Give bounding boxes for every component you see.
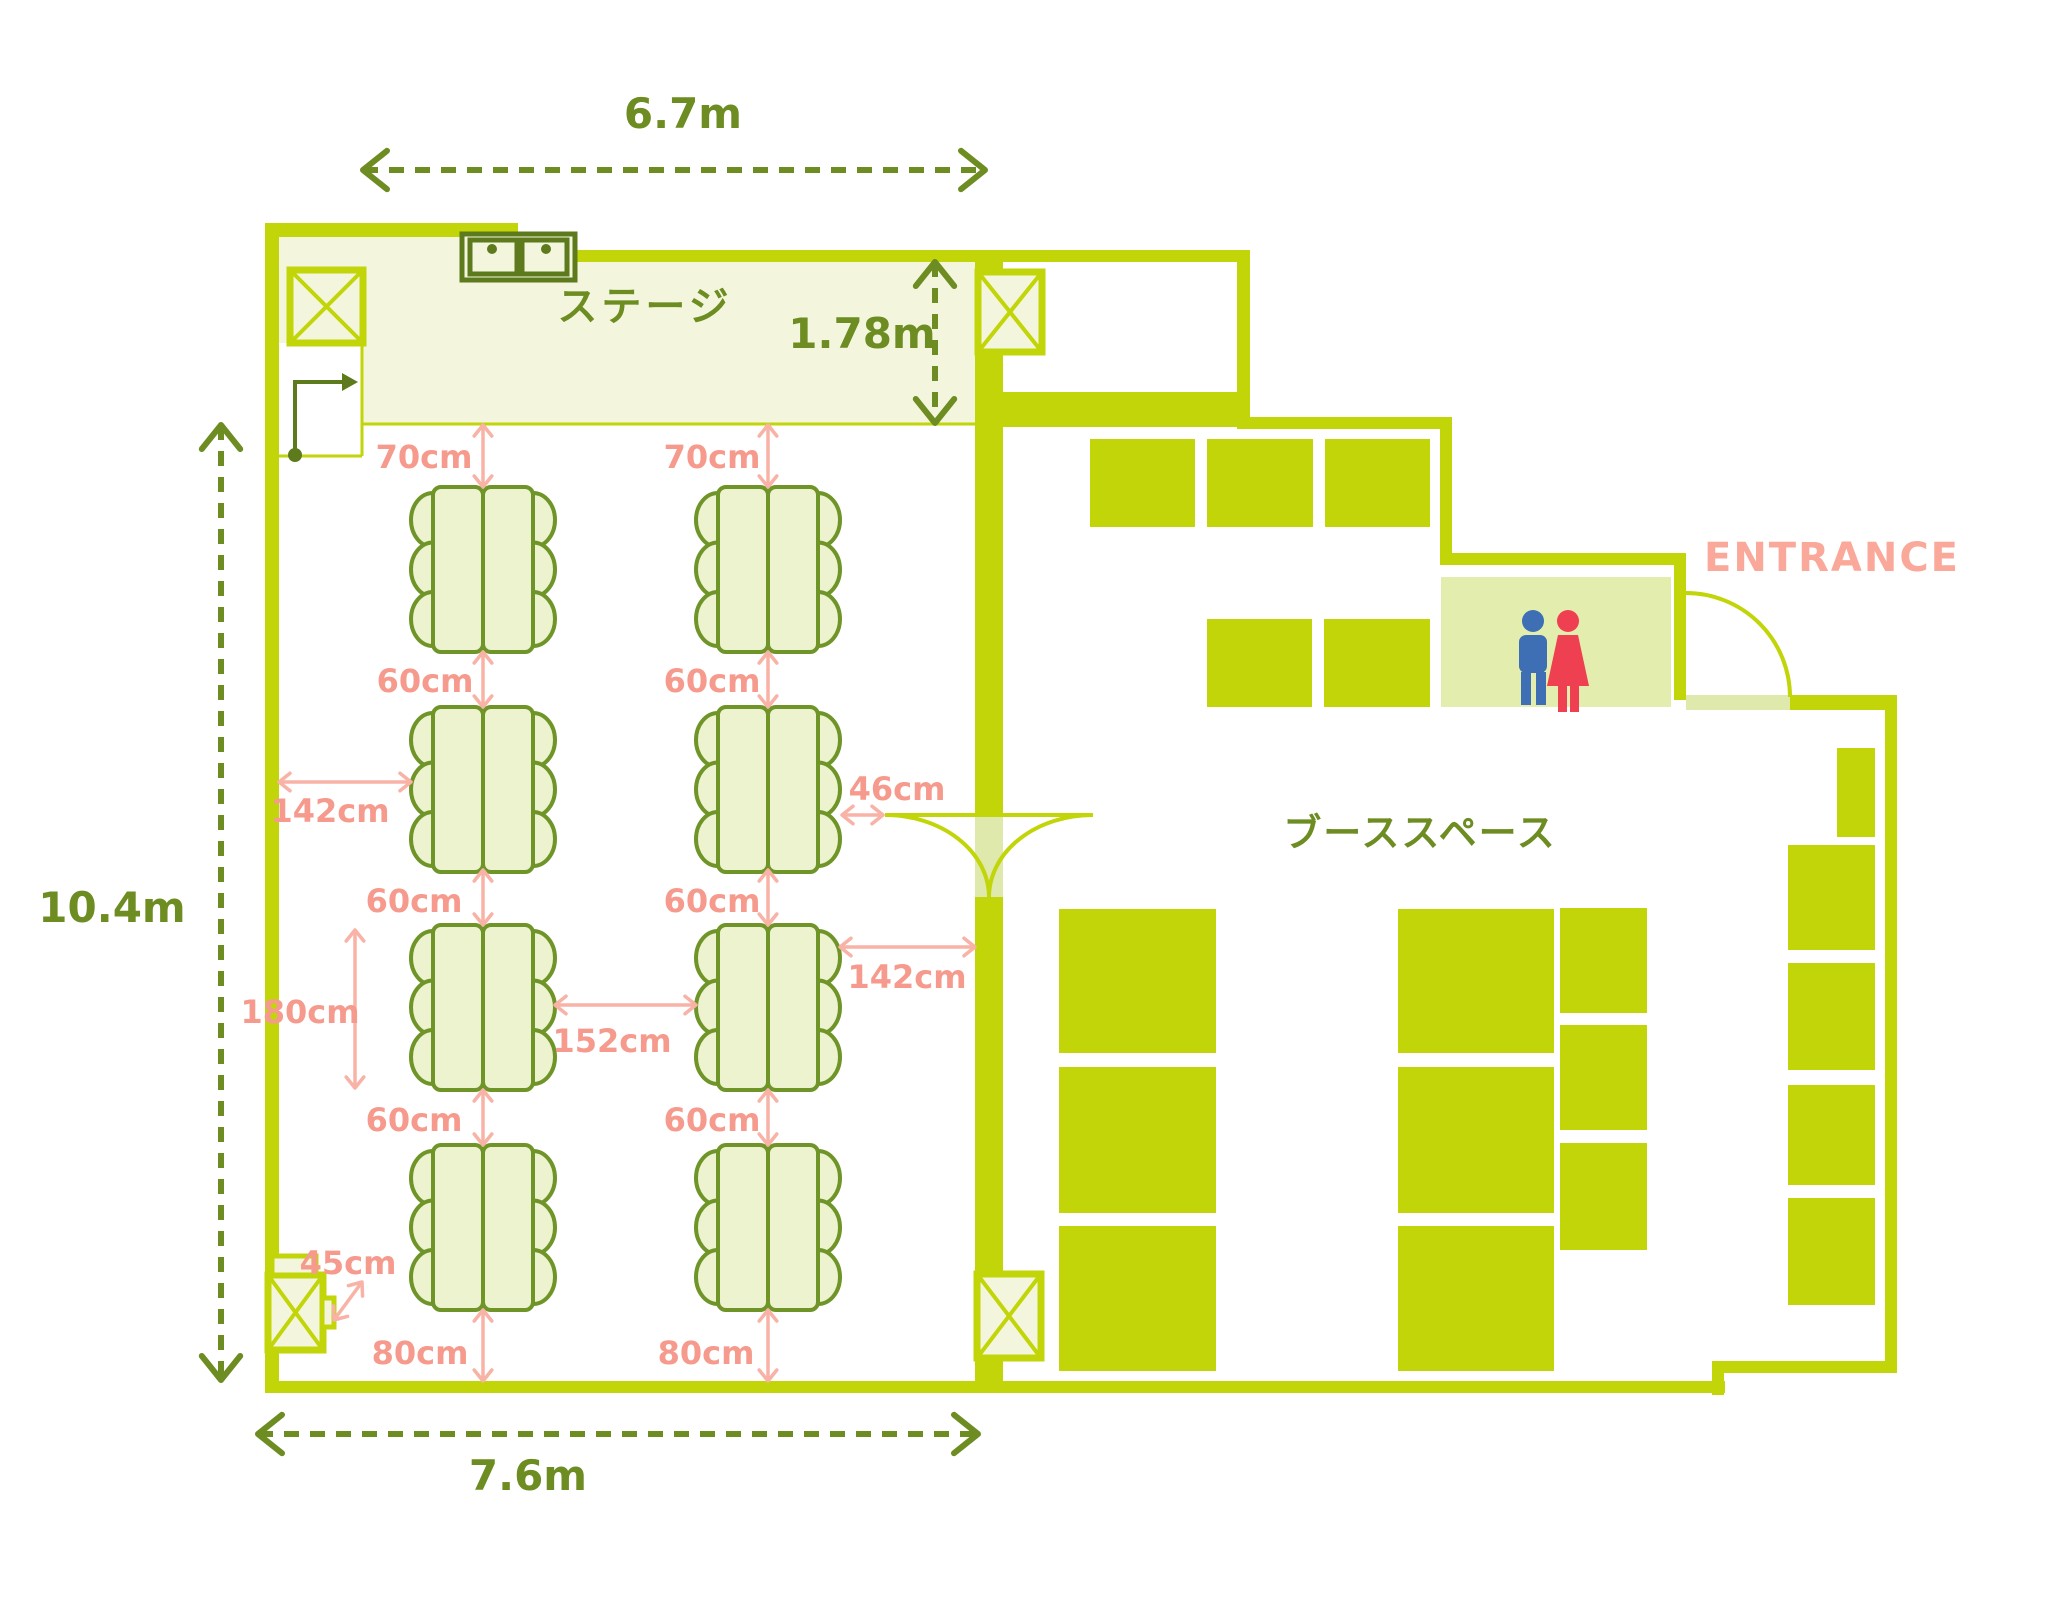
- dimension: 70cm: [664, 425, 777, 487]
- wall-segment: [1237, 417, 1452, 429]
- booth-table: [1788, 1085, 1875, 1185]
- dimension-label: 142cm: [847, 958, 966, 996]
- booth-table: [1788, 1198, 1875, 1305]
- dimension: 142cm: [270, 773, 411, 830]
- dimension-label: 70cm: [376, 438, 473, 476]
- chair: [818, 763, 840, 817]
- chair: [696, 812, 718, 866]
- dimension: 60cm: [664, 870, 777, 925]
- dimension: 10.4m: [38, 425, 240, 1380]
- chair: [818, 592, 840, 646]
- chair: [533, 812, 555, 866]
- table: [483, 925, 533, 1090]
- chair: [818, 543, 840, 597]
- wall-segment: [1440, 417, 1452, 565]
- dimension-label: 80cm: [372, 1334, 469, 1372]
- chair: [818, 1250, 840, 1304]
- table: [718, 707, 768, 872]
- faucet-dot-icon: [487, 244, 497, 254]
- chair: [411, 763, 433, 817]
- booth-table: [1837, 748, 1875, 837]
- wall-segment: [1440, 553, 1686, 565]
- chair: [533, 592, 555, 646]
- booth-table: [1207, 439, 1313, 527]
- dimension: 80cm: [658, 1310, 777, 1381]
- chair: [533, 763, 555, 817]
- chair: [533, 543, 555, 597]
- dimension-label: 1.78m: [788, 309, 935, 358]
- booth-table: [1059, 1226, 1216, 1371]
- table-group: [696, 707, 840, 872]
- chair: [533, 493, 555, 547]
- chair: [696, 1151, 718, 1205]
- table: [718, 925, 768, 1090]
- table: [433, 707, 483, 872]
- dimension: 60cm: [664, 1090, 777, 1145]
- dimension-label: 142cm: [270, 792, 389, 830]
- chair: [411, 931, 433, 985]
- dimension-label: 60cm: [664, 1101, 761, 1139]
- wall-segment: [975, 392, 1245, 427]
- dimension: 152cm: [552, 996, 696, 1060]
- table: [433, 1145, 483, 1310]
- wall-segment: [265, 1381, 1725, 1393]
- wall-segment: [1722, 1361, 1897, 1373]
- chair: [411, 1201, 433, 1255]
- booth-table: [1560, 1143, 1647, 1250]
- entrance-label: ENTRANCE: [1704, 535, 1960, 581]
- chair: [411, 812, 433, 866]
- dimension-label: 60cm: [377, 662, 474, 700]
- booth-table: [1788, 963, 1875, 1070]
- chair: [533, 1201, 555, 1255]
- table: [768, 925, 818, 1090]
- chair: [818, 1151, 840, 1205]
- dimension: 80cm: [372, 1310, 492, 1381]
- chair: [411, 1250, 433, 1304]
- dimension-label: 80cm: [658, 1334, 755, 1372]
- booth-table: [1560, 908, 1647, 1013]
- chair: [696, 1250, 718, 1304]
- dimension: 7.6m: [258, 1415, 978, 1500]
- dimension-label: 45cm: [300, 1244, 397, 1282]
- table-group: [411, 1145, 555, 1310]
- dimension-label: 7.6m: [469, 1451, 587, 1500]
- dimension: 180cm: [240, 930, 363, 1088]
- wall-segment: [1885, 695, 1897, 1373]
- table-group: [696, 925, 840, 1090]
- chair: [696, 1030, 718, 1084]
- chair: [411, 981, 433, 1035]
- chair: [696, 763, 718, 817]
- chair: [818, 812, 840, 866]
- chair: [696, 713, 718, 767]
- chair: [818, 981, 840, 1035]
- table: [718, 487, 768, 652]
- chair: [818, 931, 840, 985]
- dimension-label: 60cm: [366, 882, 463, 920]
- chair: [411, 713, 433, 767]
- chair: [533, 1250, 555, 1304]
- chair: [696, 1201, 718, 1255]
- booth-table: [1398, 1226, 1554, 1371]
- dimension-label: 70cm: [664, 438, 761, 476]
- table: [768, 1145, 818, 1310]
- dimension: 6.7m: [363, 89, 985, 189]
- booth-table: [1207, 619, 1312, 707]
- pillar: [978, 272, 1042, 352]
- table: [433, 925, 483, 1090]
- seating-tables-layer: [411, 487, 840, 1310]
- restroom: [1441, 577, 1671, 712]
- table: [483, 1145, 533, 1310]
- chair: [696, 592, 718, 646]
- chair: [533, 1151, 555, 1205]
- dimension: 70cm: [376, 425, 492, 487]
- door-gaps-layer: [975, 695, 1790, 897]
- dimension-label: 60cm: [664, 882, 761, 920]
- booth-space-label: ブーススペース: [1283, 811, 1557, 855]
- chair: [533, 713, 555, 767]
- table: [483, 487, 533, 652]
- booth-table: [1560, 1025, 1647, 1130]
- table-group: [411, 925, 555, 1090]
- floor-plan: 6.7m10.4m7.6m1.78m70cm70cm60cm60cm60cm60…: [0, 0, 2048, 1612]
- doorway-gap: [1686, 695, 1790, 710]
- pillar: [268, 1275, 323, 1350]
- sink-unit: [462, 234, 575, 280]
- chair: [818, 1030, 840, 1084]
- booth-table: [1059, 909, 1216, 1053]
- booth-table: [1398, 909, 1554, 1053]
- dimension-label: 180cm: [240, 993, 359, 1031]
- chair: [818, 493, 840, 547]
- chair: [533, 931, 555, 985]
- entrance-door-arc: [1686, 593, 1790, 697]
- stage-label: ステージ: [557, 284, 732, 330]
- dimension: 60cm: [366, 1090, 492, 1145]
- floor-plan-page: 6.7m10.4m7.6m1.78m70cm70cm60cm60cm60cm60…: [0, 0, 2048, 1612]
- chair: [818, 713, 840, 767]
- booth-table: [1324, 619, 1430, 707]
- electric-dot-icon: [288, 448, 302, 462]
- chair: [696, 931, 718, 985]
- table-group: [696, 1145, 840, 1310]
- dimension-label: 60cm: [664, 662, 761, 700]
- chair: [696, 493, 718, 547]
- stage-notch: [279, 343, 362, 457]
- faucet-dot-icon: [541, 244, 551, 254]
- dimension-label: 6.7m: [624, 89, 742, 138]
- pillar: [290, 270, 363, 343]
- dimension: 142cm: [840, 938, 975, 996]
- dimension-label: 152cm: [552, 1022, 671, 1060]
- wall-segment: [1674, 553, 1686, 700]
- table: [483, 707, 533, 872]
- wall-segment: [505, 250, 1250, 262]
- table: [718, 1145, 768, 1310]
- booth-table: [1090, 439, 1195, 527]
- dimension-label: 46cm: [849, 770, 946, 808]
- table: [768, 487, 818, 652]
- table-group: [411, 487, 555, 652]
- dimension: 60cm: [366, 870, 492, 925]
- wall-segment: [1790, 695, 1897, 710]
- table: [433, 487, 483, 652]
- table-group: [411, 707, 555, 872]
- dimension-label: 10.4m: [38, 883, 185, 932]
- double-door-arc: [989, 815, 1093, 897]
- double-door-arc: [885, 815, 989, 897]
- booth-table: [1325, 439, 1430, 527]
- chair: [411, 543, 433, 597]
- booth-table: [1398, 1067, 1554, 1213]
- booth-table: [1788, 845, 1875, 950]
- dimension: 60cm: [664, 652, 777, 707]
- dimension: 60cm: [377, 652, 492, 707]
- dimension-line: [334, 1282, 362, 1320]
- chair: [411, 592, 433, 646]
- chair: [696, 543, 718, 597]
- chair: [818, 1201, 840, 1255]
- table-group: [696, 487, 840, 652]
- chair: [411, 493, 433, 547]
- booth-table: [1059, 1067, 1216, 1213]
- restroom-area: [1441, 577, 1671, 707]
- chair: [411, 1151, 433, 1205]
- table: [768, 707, 818, 872]
- chair: [696, 981, 718, 1035]
- pillar: [977, 1274, 1041, 1358]
- dimension-label: 60cm: [366, 1101, 463, 1139]
- chair: [411, 1030, 433, 1084]
